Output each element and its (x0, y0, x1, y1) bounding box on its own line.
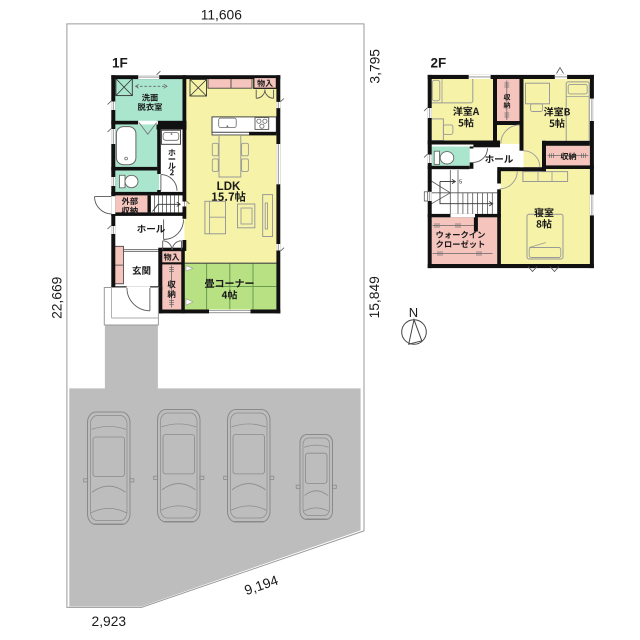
svg-text:1F: 1F (112, 56, 128, 71)
svg-text:3,795: 3,795 (368, 49, 383, 84)
svg-text:22,669: 22,669 (50, 276, 65, 319)
svg-text:5: 5 (459, 179, 462, 185)
svg-text:2F: 2F (431, 56, 447, 71)
svg-text:11,606: 11,606 (201, 8, 243, 23)
svg-text:N: N (409, 305, 418, 320)
svg-text:15,849: 15,849 (367, 276, 382, 319)
svg-text:2,923: 2,923 (92, 614, 127, 629)
